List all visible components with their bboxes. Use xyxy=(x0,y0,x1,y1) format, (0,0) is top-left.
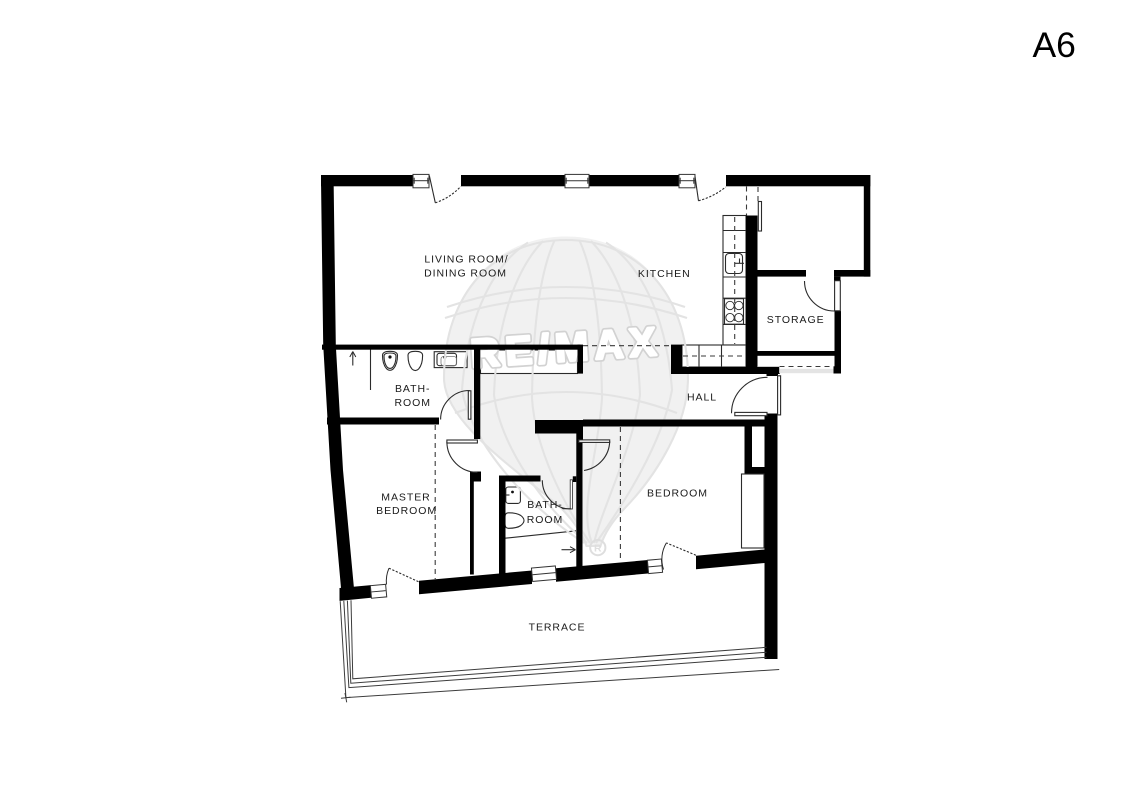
svg-text:BATH-: BATH- xyxy=(527,499,562,511)
svg-text:R: R xyxy=(594,542,602,554)
svg-text:BEDROOM: BEDROOM xyxy=(647,487,708,499)
svg-text:KITCHEN: KITCHEN xyxy=(638,268,691,280)
svg-text:STORAGE: STORAGE xyxy=(767,314,825,326)
svg-text:BEDROOM: BEDROOM xyxy=(376,505,437,517)
svg-text:MASTER: MASTER xyxy=(381,491,430,503)
svg-text:BATH-: BATH- xyxy=(395,383,430,395)
svg-text:ROOM: ROOM xyxy=(527,514,563,526)
svg-text:DINING ROOM: DINING ROOM xyxy=(424,268,507,280)
svg-text:A6: A6 xyxy=(1033,25,1076,65)
svg-text:LIVING ROOM/: LIVING ROOM/ xyxy=(424,253,508,265)
svg-text:ROOM: ROOM xyxy=(394,397,430,409)
svg-text:HALL: HALL xyxy=(687,392,717,404)
svg-text:TERRACE: TERRACE xyxy=(529,621,586,633)
